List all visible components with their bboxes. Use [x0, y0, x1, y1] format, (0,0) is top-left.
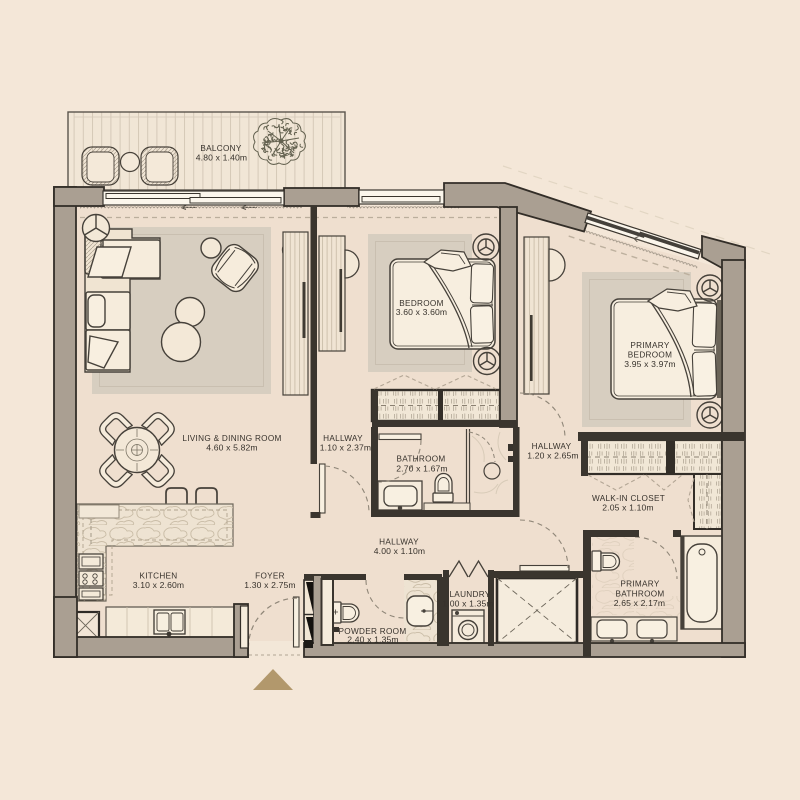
svg-text:2.40 x 1.35m: 2.40 x 1.35m: [347, 635, 398, 645]
svg-text:BATHROOM: BATHROOM: [396, 455, 445, 464]
svg-text:2.05 x 1.10m: 2.05 x 1.10m: [602, 503, 653, 513]
svg-text:PRIMARY: PRIMARY: [630, 341, 669, 350]
svg-text:PRIMARY: PRIMARY: [620, 580, 659, 589]
svg-text:1.00 x 1.35m: 1.00 x 1.35m: [442, 599, 493, 609]
svg-text:1.30 x 2.75m: 1.30 x 2.75m: [244, 580, 295, 590]
svg-text:2.65 x 2.17m: 2.65 x 2.17m: [614, 598, 665, 608]
svg-text:3.10 x 2.60m: 3.10 x 2.60m: [133, 580, 184, 590]
svg-text:4.60 x 5.82m: 4.60 x 5.82m: [206, 443, 257, 453]
svg-text:4.80 x 1.40m: 4.80 x 1.40m: [196, 153, 247, 163]
svg-text:3.95 x 3.97m: 3.95 x 3.97m: [624, 359, 675, 369]
svg-text:4.00 x 1.10m: 4.00 x 1.10m: [374, 546, 425, 556]
svg-text:2.70 x 1.67m: 2.70 x 1.67m: [396, 464, 447, 474]
svg-text:1.20 x 2.65m: 1.20 x 2.65m: [527, 451, 578, 461]
svg-text:1.10 x 2.37m: 1.10 x 2.37m: [320, 443, 371, 453]
svg-text:3.60 x 3.60m: 3.60 x 3.60m: [396, 307, 447, 317]
